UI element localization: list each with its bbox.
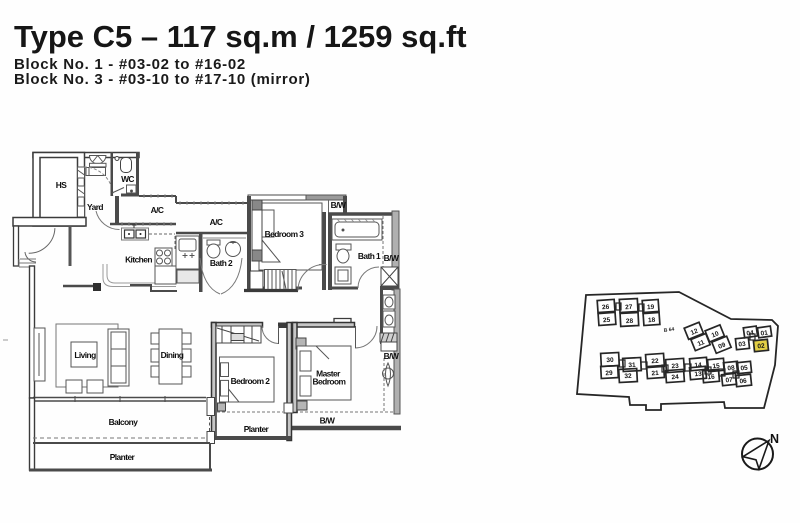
svg-text:16: 16	[707, 374, 715, 382]
svg-text:21: 21	[651, 370, 659, 378]
svg-text:08: 08	[727, 365, 735, 373]
svg-text:HS: HS	[56, 180, 67, 190]
svg-text:B/W: B/W	[320, 416, 335, 426]
svg-text:13: 13	[694, 371, 702, 379]
svg-text:24: 24	[671, 374, 679, 382]
svg-text:Planter: Planter	[244, 424, 270, 434]
svg-text:Yard: Yard	[87, 202, 103, 212]
svg-text:28: 28	[626, 318, 634, 325]
svg-text:B/W: B/W	[384, 351, 399, 361]
svg-text:27: 27	[625, 304, 633, 311]
svg-text:32: 32	[624, 373, 632, 380]
svg-text:Bedroom 3: Bedroom 3	[265, 229, 305, 239]
svg-text:A/C: A/C	[210, 217, 223, 227]
svg-text:14: 14	[694, 362, 702, 370]
svg-text:26: 26	[602, 304, 610, 312]
svg-text:Bedroom 2: Bedroom 2	[231, 376, 271, 386]
svg-text:19: 19	[647, 304, 655, 312]
svg-text:02: 02	[757, 343, 765, 351]
svg-text:07: 07	[725, 377, 733, 385]
svg-text:06: 06	[739, 378, 747, 386]
svg-text:29: 29	[605, 370, 613, 377]
svg-text:25: 25	[603, 317, 611, 325]
svg-text:WC: WC	[121, 174, 134, 184]
svg-text:03: 03	[738, 341, 746, 349]
svg-text:B/W: B/W	[331, 200, 346, 210]
svg-text:B/W: B/W	[384, 253, 399, 263]
svg-text:Bedroom: Bedroom	[313, 377, 346, 387]
svg-text:Bath 1: Bath 1	[358, 251, 381, 261]
svg-text:Kitchen: Kitchen	[125, 255, 152, 265]
svg-text:Planter: Planter	[110, 452, 136, 462]
svg-text:Dining: Dining	[161, 350, 184, 360]
svg-text:A/C: A/C	[151, 205, 164, 215]
svg-text:05: 05	[740, 365, 748, 373]
svg-text:Balcony: Balcony	[109, 417, 139, 427]
svg-text:18: 18	[648, 317, 656, 325]
svg-text:B 64: B 64	[663, 327, 675, 334]
svg-text:N: N	[770, 432, 779, 446]
svg-text:Bath 2: Bath 2	[210, 258, 233, 268]
svg-text:Living: Living	[74, 350, 96, 360]
svg-text:01: 01	[760, 329, 769, 337]
svg-text:22: 22	[651, 358, 659, 366]
svg-text:30: 30	[606, 357, 614, 364]
